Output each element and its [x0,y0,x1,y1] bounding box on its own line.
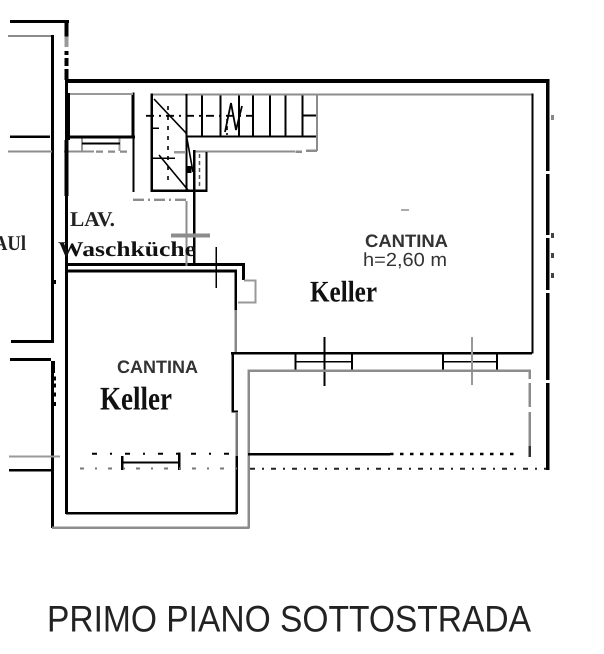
svg-text:LAV.: LAV. [70,207,115,231]
svg-text:CANTINA: CANTINA [117,357,198,377]
svg-text:PRIMO PIANO SOTTOSTRADA: PRIMO PIANO SOTTOSTRADA [47,599,531,640]
svg-text:AUl: AUl [0,231,26,255]
svg-text:Waschküche: Waschküche [58,237,196,261]
svg-text:Keller: Keller [100,382,172,418]
svg-text:h=2,60 m: h=2,60 m [363,250,447,271]
svg-text:CANTINA: CANTINA [365,231,448,251]
svg-text:Keller: Keller [310,276,377,309]
